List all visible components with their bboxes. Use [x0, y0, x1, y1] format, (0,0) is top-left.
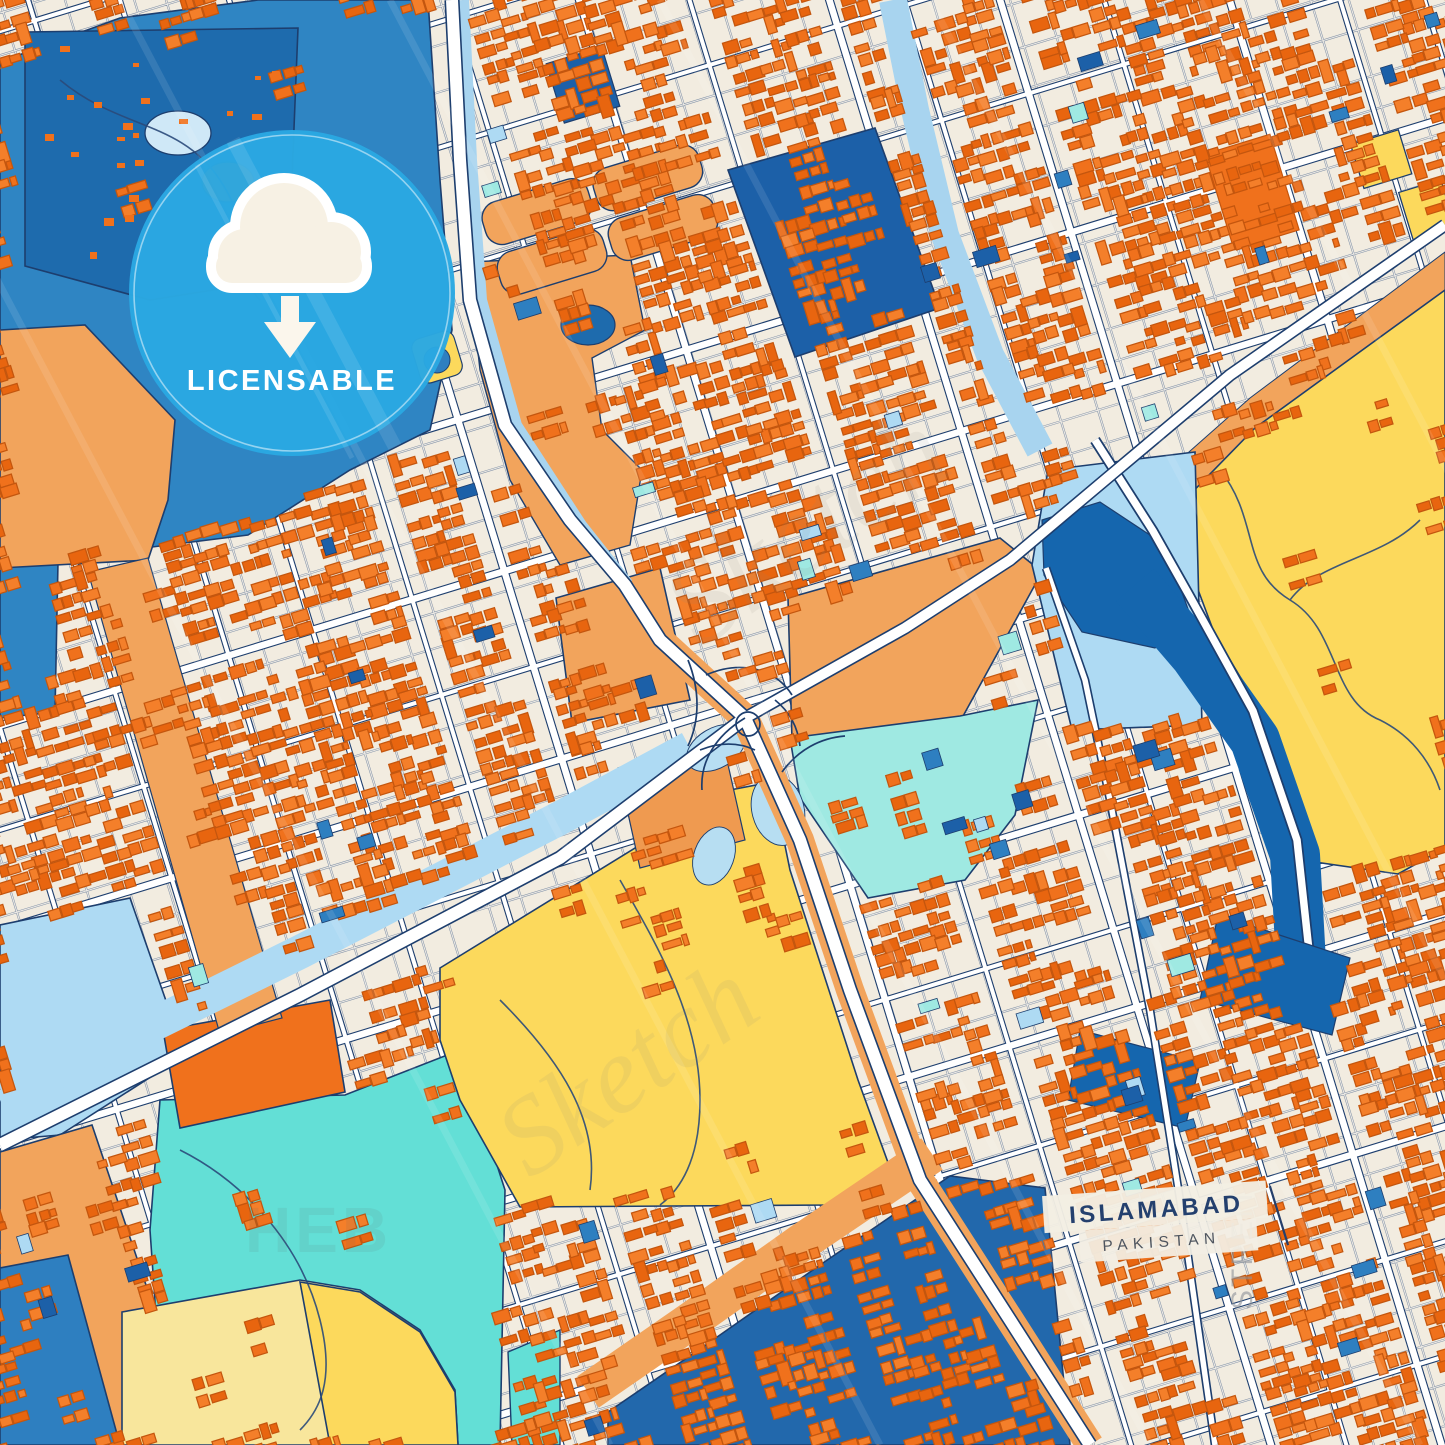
svg-text:HEB: HEB	[245, 1194, 392, 1266]
svg-text:LICENSABLE: LICENSABLE	[187, 365, 397, 397]
